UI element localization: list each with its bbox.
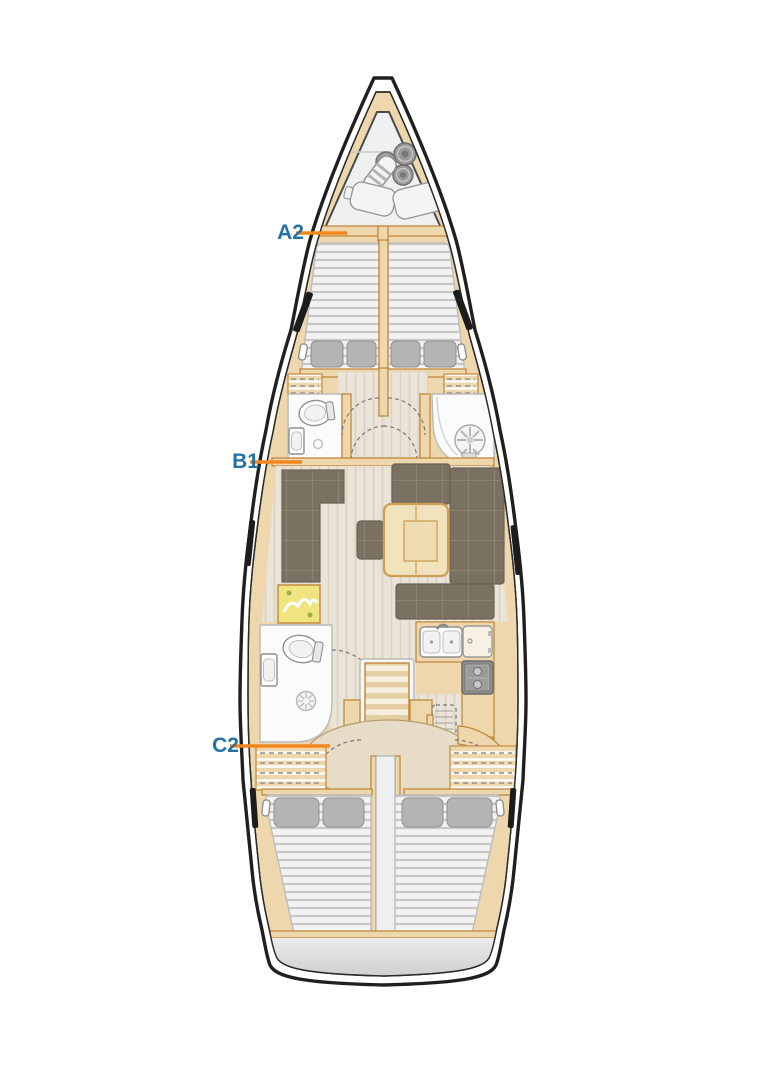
- chart-art-panel: [278, 585, 320, 623]
- pillow: [447, 798, 492, 827]
- label-c2: C2: [212, 734, 239, 757]
- fridge-icon: [463, 626, 492, 657]
- fore-cabin: [298, 226, 467, 377]
- stove-icon: [462, 661, 493, 694]
- berth-divider: [379, 240, 388, 376]
- pillow: [391, 341, 420, 367]
- shower-drain-fan-icon: [297, 692, 316, 711]
- galley-sink-icon: [420, 625, 462, 657]
- pillow: [424, 341, 456, 367]
- salon-table: [384, 504, 448, 576]
- reading-lamp-icon: [262, 800, 271, 817]
- forward-head: [288, 394, 342, 460]
- forward-shower: [432, 394, 494, 460]
- salon-bulkhead: [272, 458, 494, 466]
- reading-lamp-icon: [496, 800, 505, 817]
- pillow: [323, 798, 364, 827]
- ottoman: [357, 521, 384, 559]
- pillow: [347, 341, 376, 367]
- pillow: [274, 798, 319, 827]
- stern-trim: [262, 931, 504, 938]
- deck-plan-svg: A2 B1 C2: [0, 0, 764, 1080]
- salon: [262, 458, 508, 623]
- yacht-deck-plan: A2 B1 C2: [0, 0, 764, 1080]
- aft-section: [248, 720, 518, 980]
- label-a2: A2: [277, 221, 304, 244]
- pillow: [402, 798, 443, 827]
- shower-drain-fan-icon: [455, 425, 485, 455]
- label-b1: B1: [232, 450, 259, 473]
- pillow: [311, 341, 343, 367]
